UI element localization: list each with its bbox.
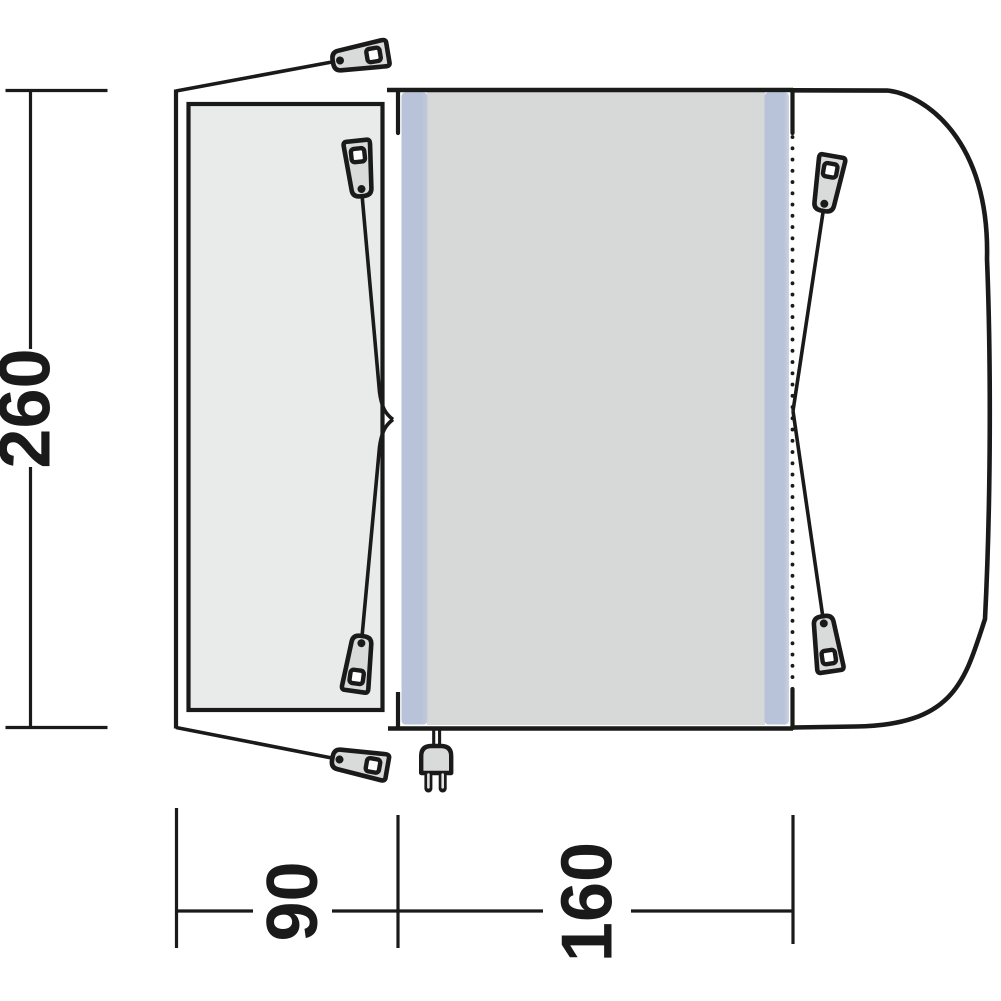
svg-text:160: 160	[548, 842, 628, 962]
svg-text:90: 90	[253, 861, 333, 941]
svg-text:260: 260	[0, 348, 66, 468]
